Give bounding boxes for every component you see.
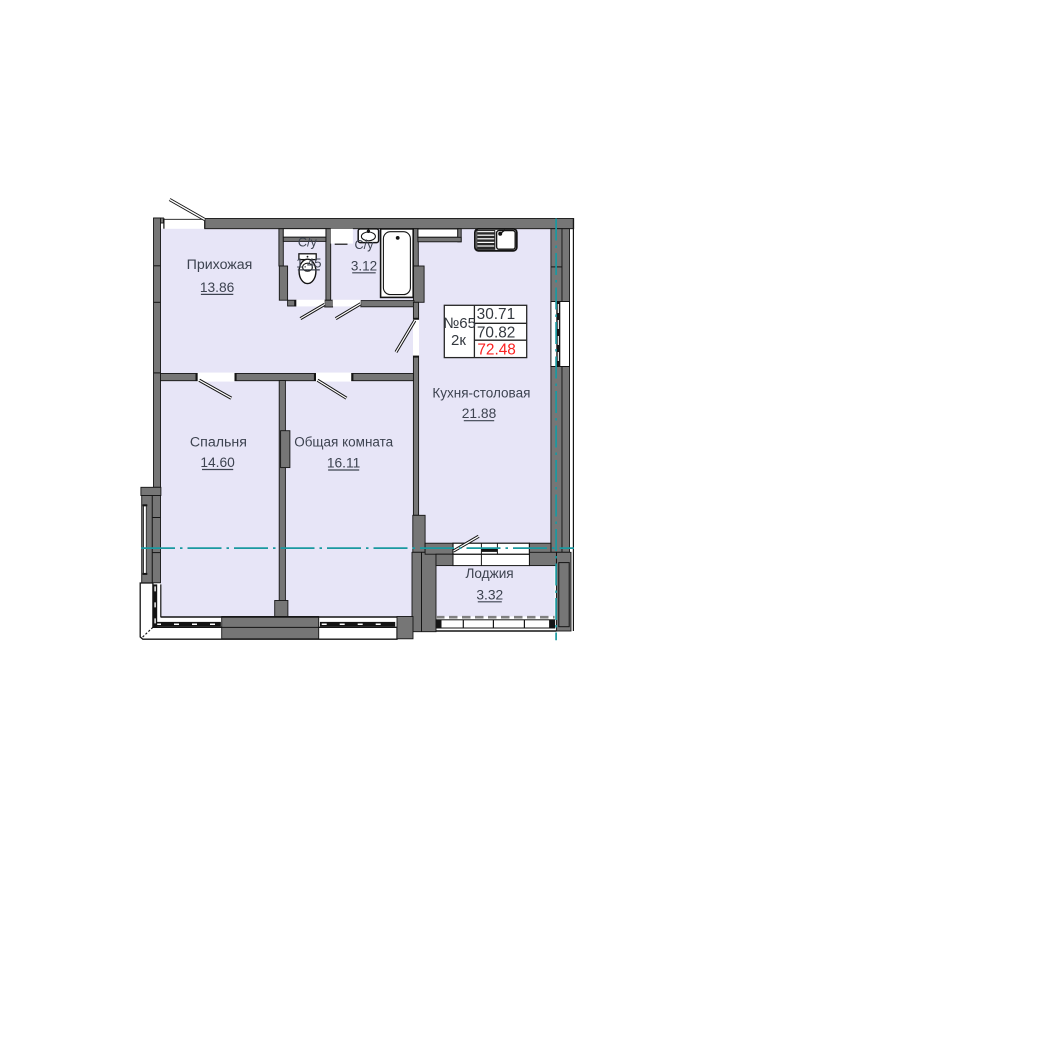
svg-text:Общая комната: Общая комната	[294, 435, 393, 450]
svg-text:2к: 2к	[451, 332, 466, 349]
svg-text:30.71: 30.71	[477, 306, 516, 323]
svg-text:21.88: 21.88	[462, 406, 497, 421]
svg-text:16.11: 16.11	[327, 456, 361, 471]
svg-text:Кухня-столовая: Кухня-столовая	[432, 386, 530, 401]
svg-text:С/у: С/у	[355, 238, 375, 252]
svg-text:Прихожая: Прихожая	[187, 257, 253, 273]
svg-text:С/у: С/у	[298, 236, 318, 250]
svg-text:Спальня: Спальня	[190, 435, 247, 451]
svg-text:№65: №65	[443, 315, 476, 332]
svg-text:3.12: 3.12	[351, 258, 377, 273]
svg-text:Лоджия: Лоджия	[466, 566, 514, 581]
svg-text:1.45: 1.45	[296, 256, 321, 271]
svg-text:72.48: 72.48	[477, 342, 516, 359]
svg-text:70.82: 70.82	[477, 325, 516, 342]
svg-text:14.60: 14.60	[200, 455, 235, 470]
svg-text:3.32: 3.32	[476, 587, 503, 602]
svg-text:13.86: 13.86	[200, 280, 235, 295]
